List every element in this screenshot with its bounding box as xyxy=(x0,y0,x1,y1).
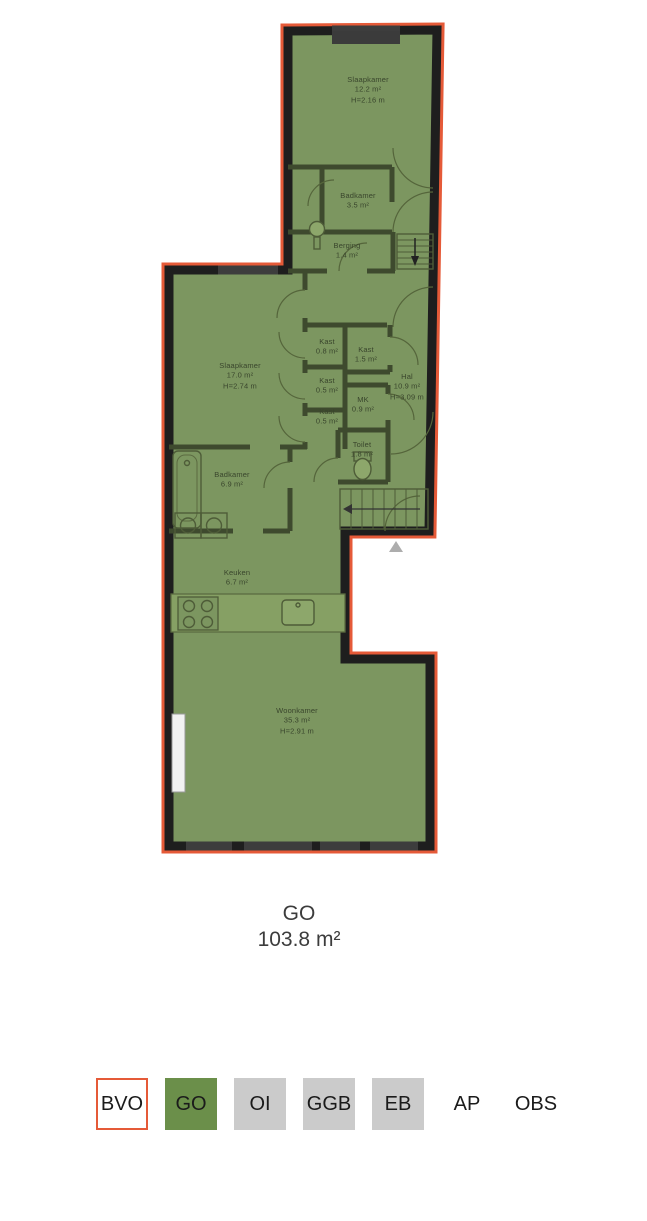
legend: BVOGOOIGGBEBAPOBS xyxy=(96,1078,562,1130)
floor-plan: Slaapkamer12.2 m²H=2.16 mBadkamer3.5 m²B… xyxy=(0,0,647,1000)
legend-item-label: GGB xyxy=(307,1093,351,1116)
caption-area: 103.8 m² xyxy=(258,928,341,951)
legend-item-label: BVO xyxy=(101,1093,143,1116)
legend-item-go[interactable]: GO xyxy=(165,1078,217,1130)
legend-item-eb[interactable]: EB xyxy=(372,1078,424,1130)
caption-label: GO xyxy=(283,902,316,925)
legend-item-label: OI xyxy=(249,1093,270,1116)
room-label-toilet: Toilet1.8 m² xyxy=(351,440,374,459)
legend-item-label: GO xyxy=(175,1093,206,1116)
stove-icon xyxy=(178,597,218,630)
legend-item-label: EB xyxy=(385,1093,412,1116)
legend-item-bvo[interactable]: BVO xyxy=(96,1078,148,1130)
legend-item-ap[interactable]: AP xyxy=(441,1078,493,1130)
plan-caption: GO 103.8 m² xyxy=(258,902,341,951)
room-label-berging: Berging1.4 m² xyxy=(334,241,361,260)
radiator xyxy=(172,714,185,792)
kitchen-sink-icon xyxy=(282,600,314,625)
legend-item-label: AP xyxy=(454,1093,481,1116)
entrance-arrow-icon xyxy=(389,541,403,552)
legend-item-oi[interactable]: OI xyxy=(234,1078,286,1130)
legend-item-label: OBS xyxy=(515,1093,557,1116)
room-label-keuken: Keuken6.7 m² xyxy=(224,568,250,587)
legend-item-obs[interactable]: OBS xyxy=(510,1078,562,1130)
legend-item-ggb[interactable]: GGB xyxy=(303,1078,355,1130)
